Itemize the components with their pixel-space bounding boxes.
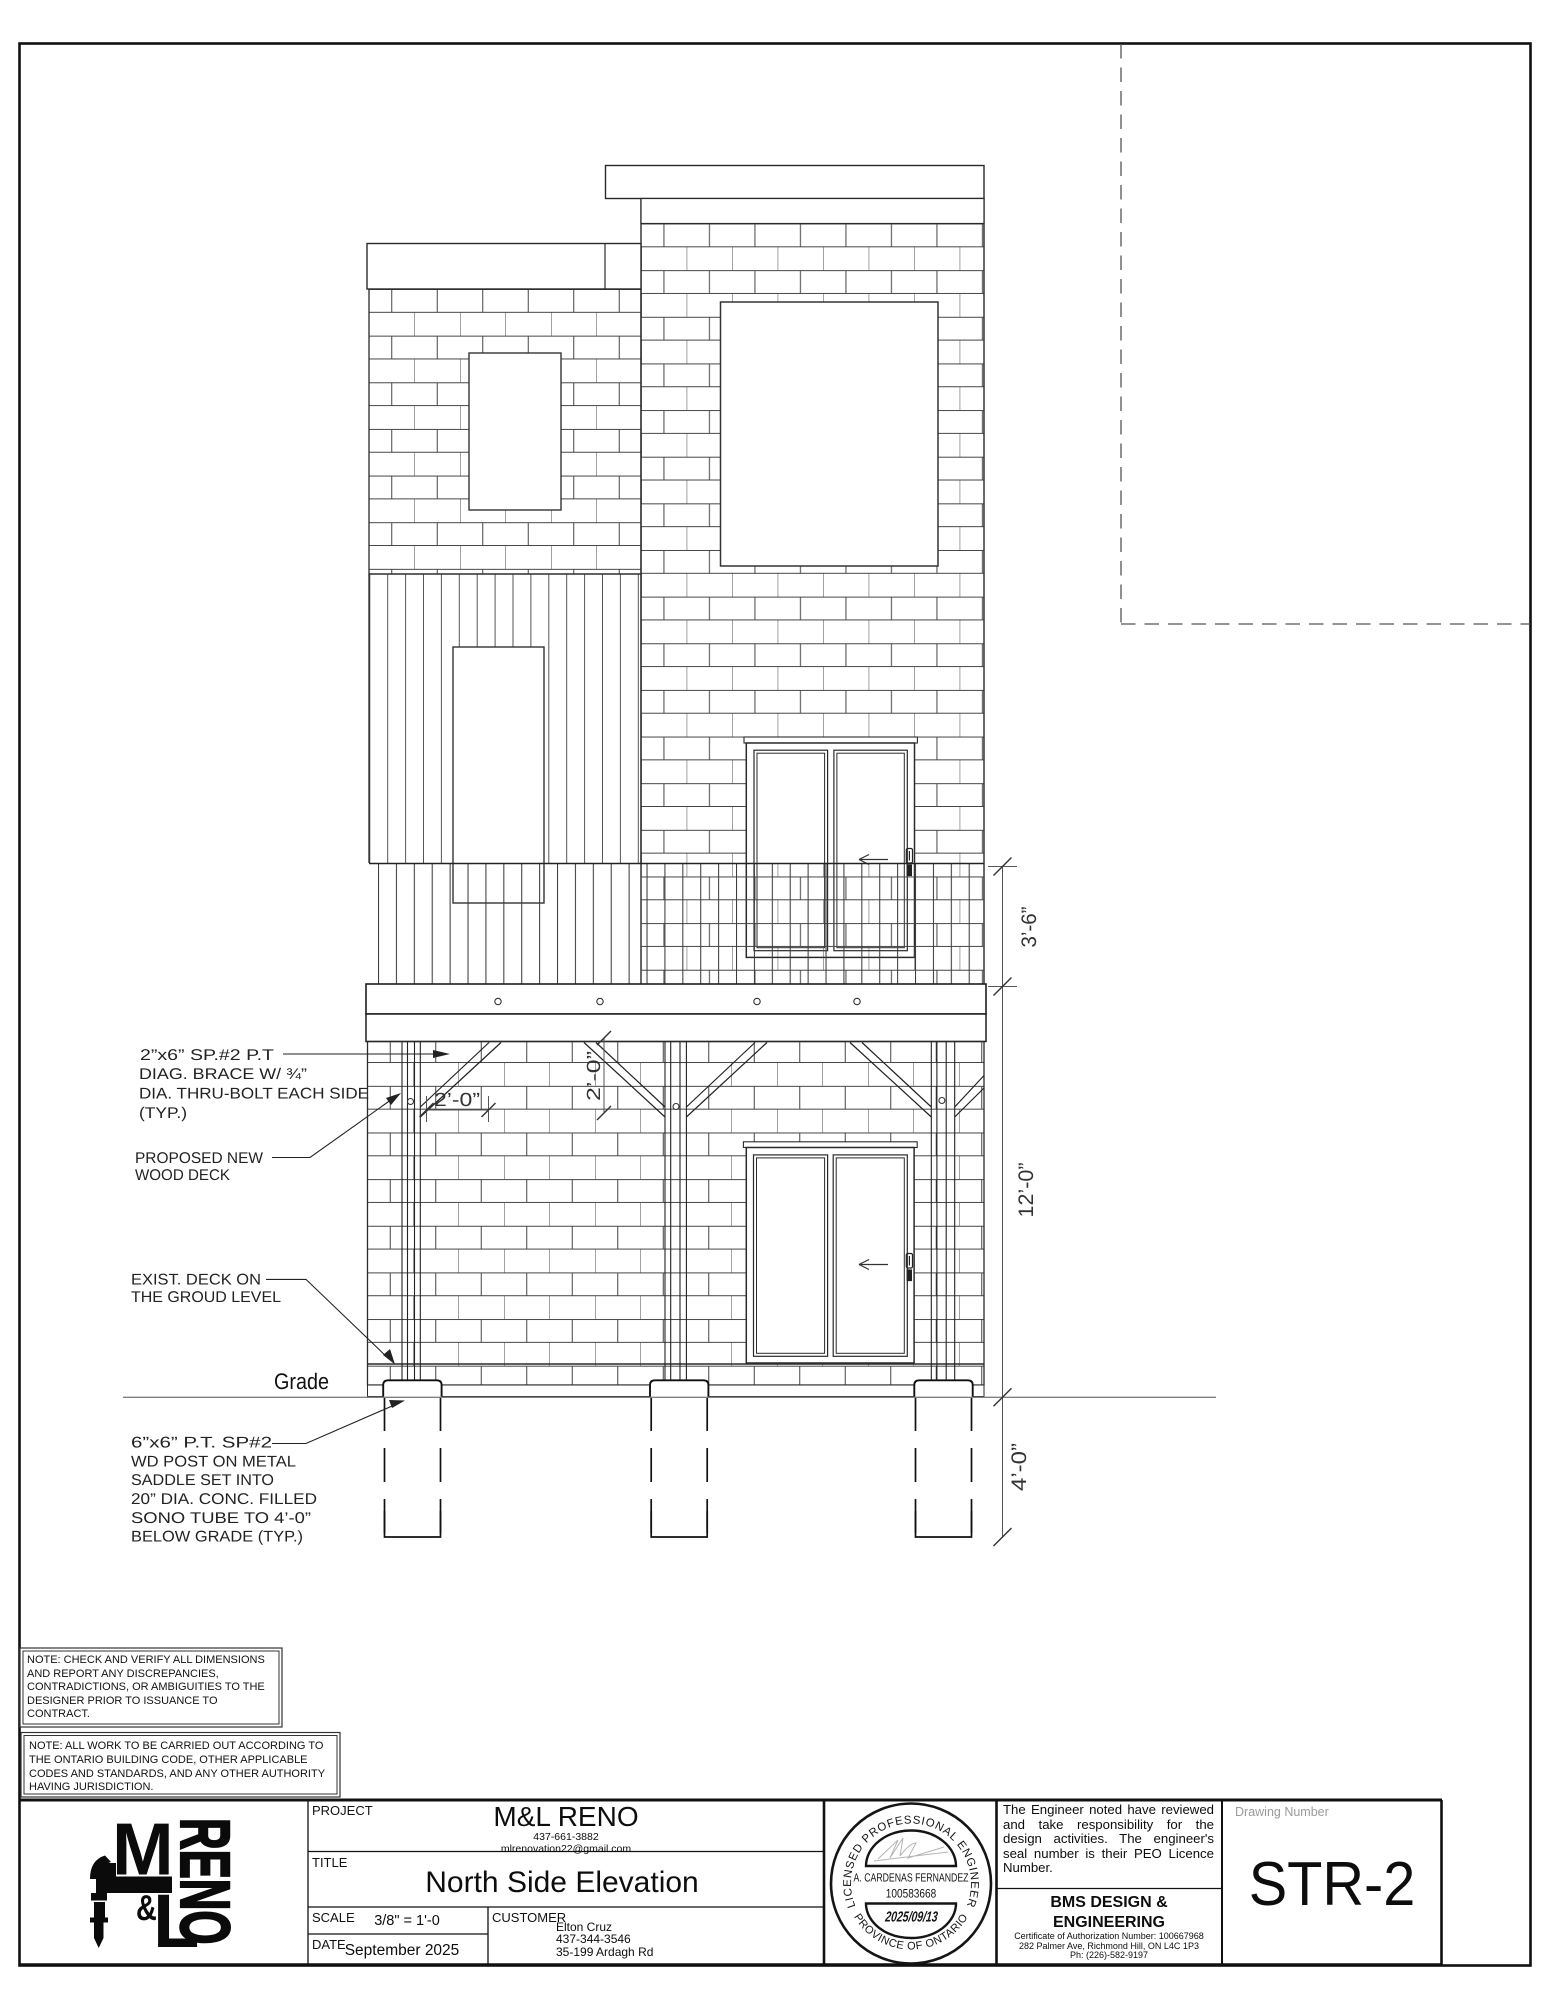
svg-text:BELOW GRADE (TYP.): BELOW GRADE (TYP.) (131, 1529, 303, 1546)
svg-text:12’-0”: 12’-0” (1015, 1163, 1038, 1218)
svg-text:DIAG. BRACE W/ ¾”: DIAG. BRACE W/ ¾” (139, 1066, 307, 1083)
svg-text:PROPOSED NEW: PROPOSED NEW (135, 1150, 263, 1167)
svg-text:THE GROUD LEVEL: THE GROUD LEVEL (131, 1289, 281, 1306)
svg-text:(TYP.): (TYP.) (139, 1105, 187, 1122)
svg-text:DIA. THRU-BOLT EACH SIDE: DIA. THRU-BOLT EACH SIDE (139, 1086, 369, 1103)
svg-text:2’-0”: 2’-0” (584, 1051, 605, 1101)
svg-text:2025/09/13: 2025/09/13 (884, 1910, 939, 1926)
svg-text:WD POST ON METAL: WD POST ON METAL (131, 1453, 296, 1470)
svg-text:2’-0”: 2’-0” (434, 1090, 480, 1111)
svg-text:A. CARDENAS FERNANDEZ: A. CARDENAS FERNANDEZ (854, 1871, 969, 1885)
svg-text:6”x6” P.T. SP#2: 6”x6” P.T. SP#2 (131, 1435, 272, 1452)
svg-text:4’-0”: 4’-0” (1008, 1443, 1031, 1491)
svg-text:3’-6”: 3’-6” (1018, 906, 1041, 947)
svg-text:20” DIA. CONC. FILLED: 20” DIA. CONC. FILLED (131, 1491, 317, 1508)
svg-text:Grade: Grade (274, 1369, 329, 1394)
svg-text:2”x6” SP.#2 P.T: 2”x6” SP.#2 P.T (140, 1047, 275, 1064)
svg-text:EXIST. DECK ON: EXIST. DECK ON (131, 1272, 261, 1289)
svg-text:SADDLE SET INTO: SADDLE SET INTO (131, 1472, 274, 1489)
svg-text:WOOD DECK: WOOD DECK (135, 1167, 231, 1184)
svg-text:100583668: 100583668 (886, 1887, 937, 1901)
svg-text:SONO TUBE TO 4’-0”: SONO TUBE TO 4’-0” (131, 1510, 311, 1527)
